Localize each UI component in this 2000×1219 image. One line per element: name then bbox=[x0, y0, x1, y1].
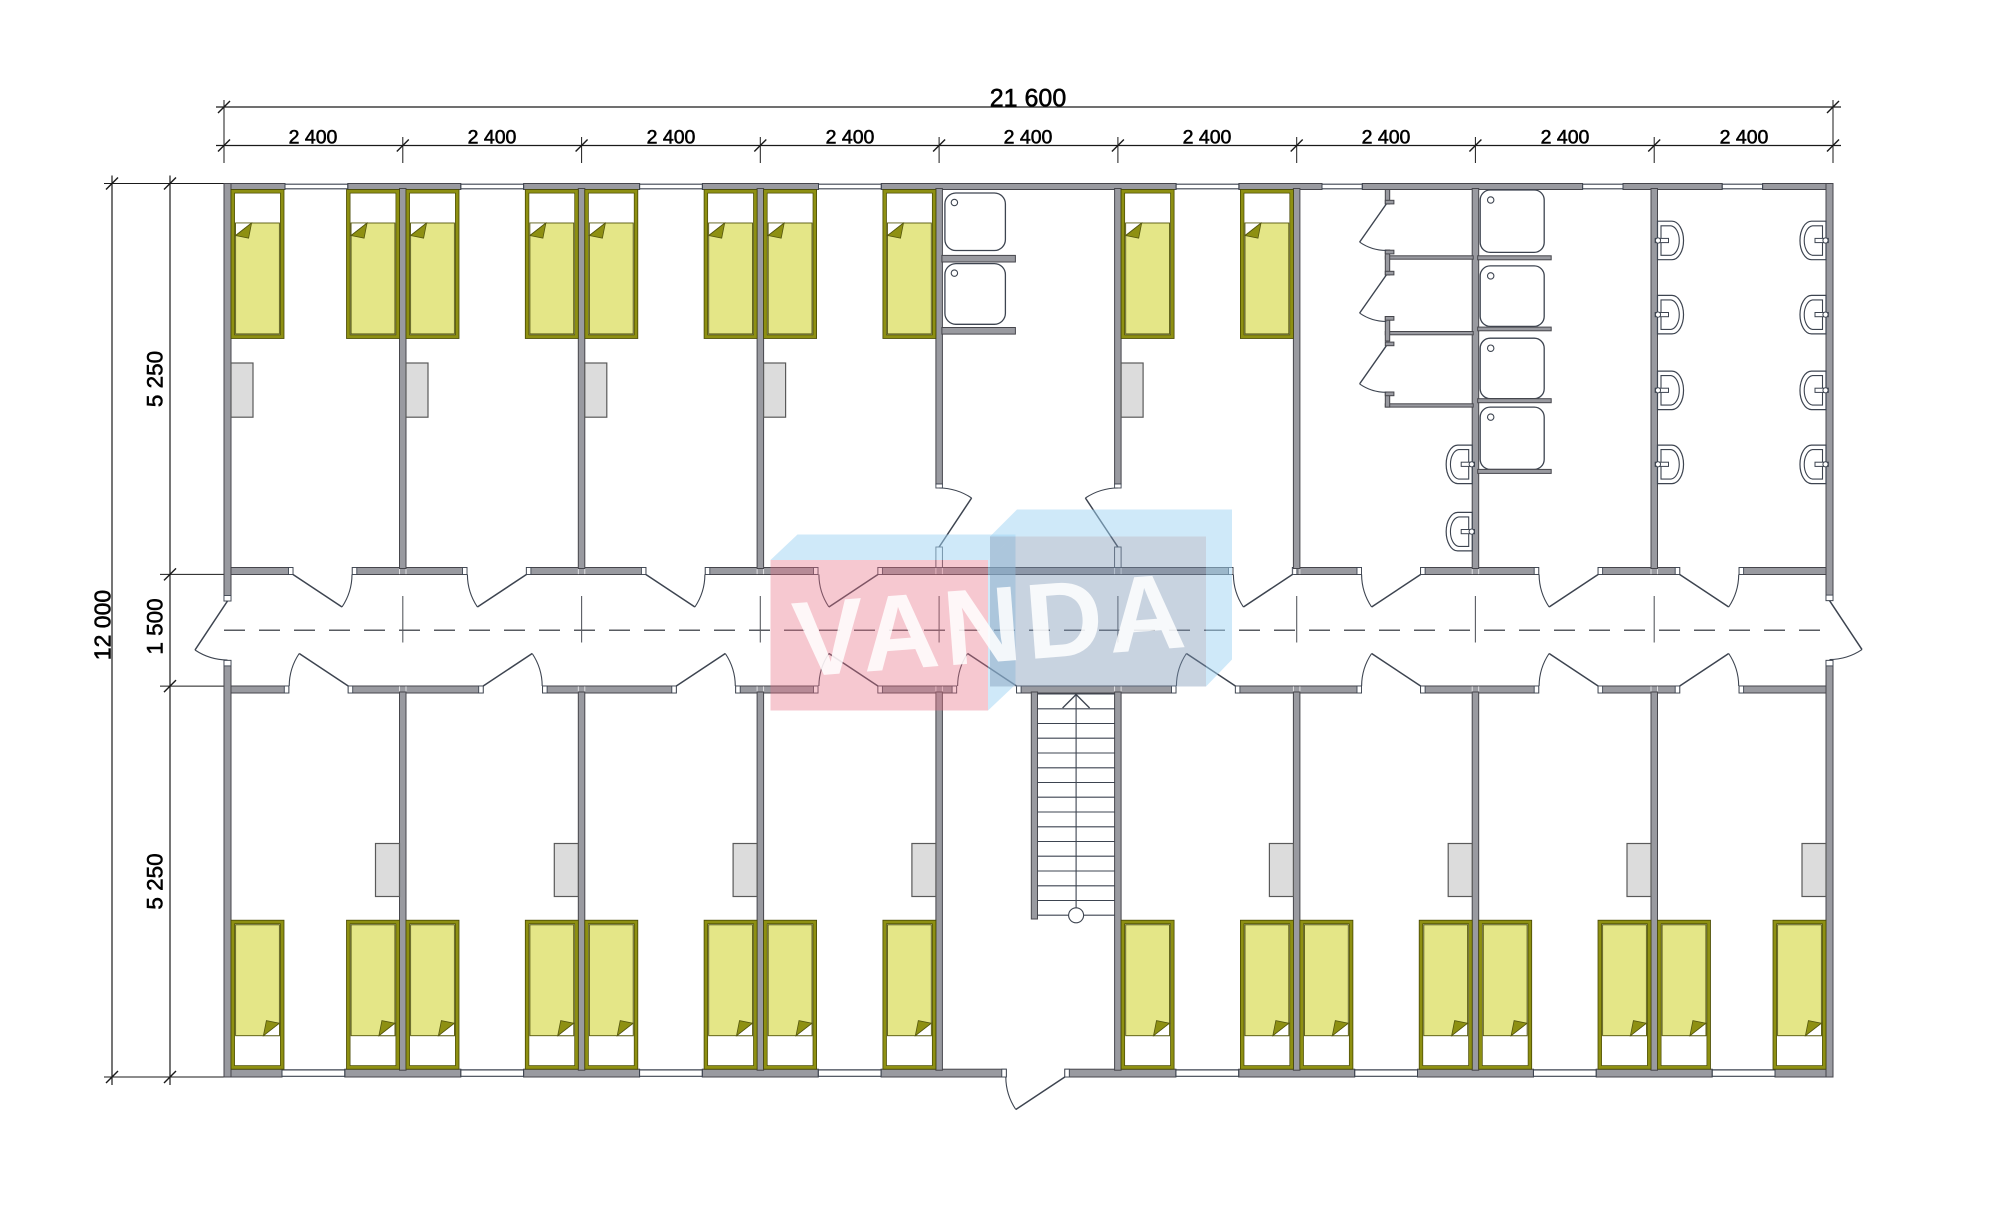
svg-text:2 400: 2 400 bbox=[647, 127, 696, 149]
svg-text:2 400: 2 400 bbox=[289, 127, 338, 149]
svg-text:5 250: 5 250 bbox=[143, 351, 168, 407]
svg-text:2 400: 2 400 bbox=[826, 127, 875, 149]
svg-text:2 400: 2 400 bbox=[1541, 127, 1590, 149]
svg-text:2 400: 2 400 bbox=[1720, 127, 1769, 149]
svg-text:2 400: 2 400 bbox=[1004, 127, 1053, 149]
svg-text:5 250: 5 250 bbox=[143, 853, 168, 909]
svg-text:2 400: 2 400 bbox=[1362, 127, 1411, 149]
svg-text:2 400: 2 400 bbox=[468, 127, 517, 149]
svg-text:2 400: 2 400 bbox=[1183, 127, 1232, 149]
svg-text:21 600: 21 600 bbox=[990, 85, 1066, 113]
svg-text:1 500: 1 500 bbox=[143, 598, 168, 654]
svg-text:12 000: 12 000 bbox=[90, 590, 116, 660]
